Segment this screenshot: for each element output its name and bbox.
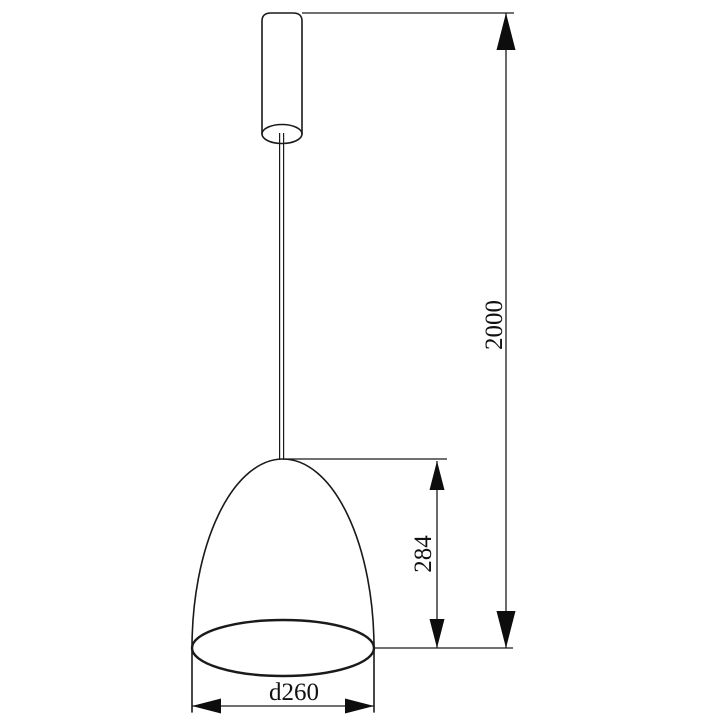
suspension-cord [280, 133, 284, 460]
drawing-canvas: 2000 284 d260 [0, 0, 708, 722]
canopy-body [262, 13, 302, 134]
arrowhead-right-icon [345, 699, 374, 714]
dimension-label-2000: 2000 [481, 300, 508, 350]
pendant-lamp-dimension-drawing: 2000 284 d260 [0, 0, 708, 722]
dimension-shade-diameter: d260 [192, 679, 374, 714]
dimension-label-284: 284 [410, 535, 437, 573]
dimension-shade-height: 284 [285, 459, 447, 648]
canopy-bottom-ellipse [262, 125, 302, 144]
arrowhead-down-icon [430, 619, 445, 648]
lampshade-opening-ellipse [192, 620, 374, 676]
arrowhead-up-icon [497, 13, 516, 50]
arrowhead-down-icon [497, 611, 516, 648]
lampshade-profile [192, 459, 374, 712]
dimension-label-d260: d260 [269, 679, 319, 706]
arrowhead-up-icon [430, 461, 445, 490]
lampshade [192, 459, 374, 712]
canopy-cylinder [262, 13, 302, 144]
dimension-suspension-height: 2000 [302, 13, 516, 648]
arrowhead-left-icon [192, 699, 221, 714]
